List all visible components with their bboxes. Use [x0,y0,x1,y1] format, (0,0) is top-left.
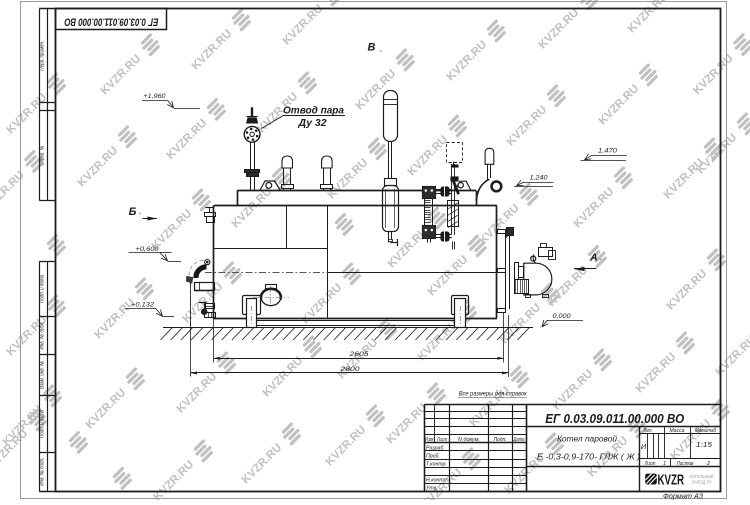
svg-text:2: 2 [706,461,710,467]
svg-text:Листов: Листов [676,461,694,467]
svg-text:Лист: Лист [436,437,447,443]
svg-text:Изм: Изм [425,437,434,443]
svg-text:◕: ◕ [139,211,142,216]
svg-text:В: В [368,42,376,54]
svg-text:Инв. № дубл.: Инв. № дубл. [40,322,46,350]
svg-text:Инв. № подл.: Инв. № подл. [40,458,46,486]
svg-text:◕: ◕ [379,48,382,53]
svg-text:Разраб.: Разраб. [426,445,445,451]
svg-text:Все размеры для справок: Все размеры для справок [459,390,528,397]
svg-text:ЗАВОД.РУ: ЗАВОД.РУ [692,480,713,485]
svg-text:А: А [589,253,597,264]
svg-text:Подп. и дата: Подп. и дата [40,275,46,303]
svg-text:Масштаб: Масштаб [695,428,717,434]
svg-text:ЕГ 0.03.09.011.00.000 ВО: ЕГ 0.03.09.011.00.000 ВО [64,16,158,28]
svg-text:◕: ◕ [599,257,602,262]
svg-text:Масса: Масса [670,428,685,434]
svg-text:Утв.: Утв. [426,486,438,492]
svg-text:Подп. и дата: Подп. и дата [40,410,46,438]
svg-text:+1,960: +1,960 [144,93,166,100]
svg-text:1,470: 1,470 [598,147,617,154]
svg-text:Лист: Лист [644,461,656,467]
svg-text:КОТЕЛЬНЫЙ: КОТЕЛЬНЫЙ [690,474,715,479]
svg-text:Т.контр.: Т.контр. [426,461,447,467]
svg-text:Формат А3: Формат А3 [663,494,703,501]
svg-text:+0,600: +0,600 [136,246,159,253]
svg-text:Проб.: Проб. [426,453,440,459]
svg-text:+0,132: +0,132 [131,301,154,308]
svg-text:Е -0,3-0,9-170- ГЛЖ ( Ж ): Е -0,3-0,9-170- ГЛЖ ( Ж ) [537,452,640,462]
svg-text:Подп.: Подп. [494,437,507,443]
svg-text:Взам. инв. №: Взам. инв. № [40,361,46,389]
svg-text:Лит.: Лит. [643,428,653,434]
svg-text:И: И [641,442,647,451]
svg-text:Ду 32: Ду 32 [297,118,326,129]
svg-text:Котел паровой: Котел паровой [557,434,617,444]
svg-text:Б: Б [129,206,137,218]
svg-text:Отвод пара: Отвод пара [283,106,344,117]
svg-text:2800: 2800 [339,366,360,373]
svg-text:0,000: 0,000 [553,313,571,320]
svg-text:Н.контр.: Н.контр. [426,478,448,484]
svg-text:1,240: 1,240 [530,174,548,181]
svg-text:Перв. примен.: Перв. примен. [40,41,46,71]
svg-text:KVZR: KVZR [658,472,685,488]
svg-text:1: 1 [663,461,666,467]
svg-text:Дата: Дата [513,437,525,443]
svg-text:ЕГ 0.03.09.011.00.000 ВО: ЕГ 0.03.09.011.00.000 ВО [545,411,684,426]
svg-text:2605: 2605 [348,351,369,358]
svg-text:Справ. №: Справ. № [40,145,46,165]
svg-text:N докум.: N докум. [458,437,480,443]
svg-text:1:15: 1:15 [696,442,712,449]
